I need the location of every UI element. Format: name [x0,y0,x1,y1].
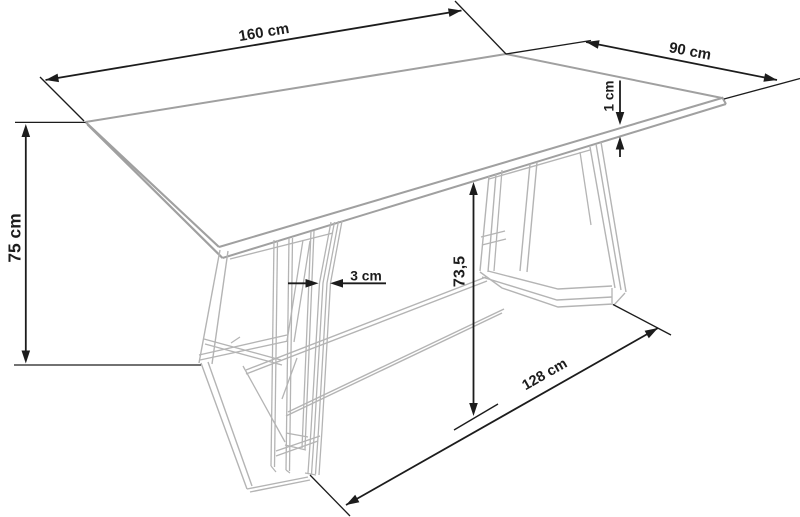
svg-text:3 cm: 3 cm [350,269,381,284]
svg-text:1 cm: 1 cm [602,81,617,112]
svg-text:128 cm: 128 cm [520,356,571,394]
svg-text:75 cm: 75 cm [5,213,25,262]
svg-text:73,5: 73,5 [452,256,469,287]
